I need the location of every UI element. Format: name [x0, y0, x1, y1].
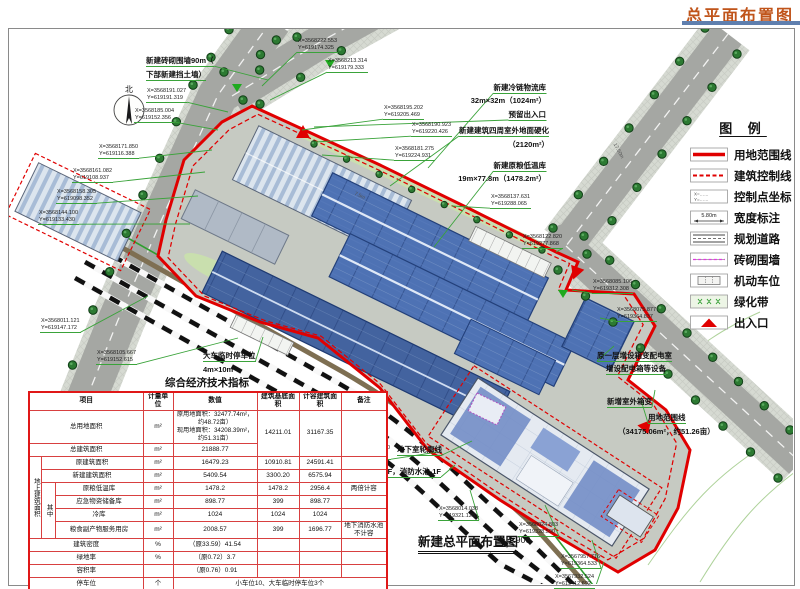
tree-icon	[239, 96, 247, 104]
tree-icon	[225, 28, 233, 34]
tree-icon	[599, 157, 607, 165]
legend: 图 例 用地范围线 建筑控制线 X=……Y=…… 控制点坐标 5.80m 宽度标…	[690, 118, 796, 333]
row-byproduct: 粮食副产物服务用房 m² 2008.57 399 1696.77 地下消防水池不…	[29, 521, 387, 538]
legend-item-control-point: X=……Y=…… 控制点坐标	[690, 186, 796, 207]
width-annotation-icon: 5.80m	[690, 210, 728, 225]
brick-wall-icon	[690, 252, 728, 267]
table-title: 综合经济技术指标	[28, 375, 386, 390]
leader-line	[428, 93, 494, 168]
tree-icon	[746, 448, 754, 456]
tree-icon	[664, 370, 672, 378]
economic-indicators-section: 综合经济技术指标 项目计量单位 数值建筑基底面积 计容建筑面积备注 总用地面积 …	[28, 375, 386, 589]
tree-icon	[272, 36, 280, 44]
tree-icon	[657, 305, 665, 313]
tree-icon	[376, 171, 382, 177]
tree-icon	[296, 73, 304, 81]
tree-icon	[409, 186, 415, 192]
tree-icon	[255, 66, 263, 74]
legend-item-control-line: 建筑控制线	[690, 165, 796, 186]
legend-item-width-annotation: 5.80m 宽度标注	[690, 207, 796, 228]
tree-icon	[719, 422, 727, 430]
tree-icon	[554, 266, 562, 274]
tree-icon	[708, 83, 716, 91]
legend-item-entrance: 出入口	[690, 312, 796, 333]
legend-item-brick-wall: 砖砌围墙	[690, 249, 796, 270]
tree-icon	[441, 201, 447, 207]
row-density: 建筑密度 % （原33.59）41.54	[29, 539, 387, 552]
row-emergency: 应急物资储备库 m² 898.77 399 898.77	[29, 495, 387, 508]
tree-icon	[650, 90, 658, 98]
svg-text:Y=……: Y=……	[694, 197, 709, 202]
entrance-icon	[690, 315, 728, 330]
tree-icon	[256, 100, 264, 108]
legend-item-parking: 机动车位	[690, 270, 796, 291]
row-original-building: 地上建筑面积 原建筑面积 m² 16479.23 10910.81 24591.…	[29, 456, 387, 469]
table-header-row: 项目计量单位 数值建筑基底面积 计容建筑面积备注	[29, 392, 387, 410]
legend-item-planned-road: 规划道路	[690, 228, 796, 249]
econ-table: 项目计量单位 数值建筑基底面积 计容建筑面积备注 总用地面积 m² 原用地面积：…	[28, 391, 388, 589]
land-boundary-icon	[690, 147, 728, 162]
tree-icon	[691, 396, 699, 404]
tree-icon	[539, 247, 545, 253]
tree-icon	[105, 267, 113, 275]
tree-icon	[636, 344, 644, 352]
tree-icon	[701, 28, 709, 32]
tree-icon	[786, 426, 793, 434]
drawing-sheet-page: 北 X=3568222.553Y=619174.325X=3568213.314…	[0, 0, 800, 589]
tree-icon	[122, 229, 130, 237]
legend-item-land-boundary: 用地范围线	[690, 144, 796, 165]
parking-icon	[690, 273, 728, 288]
tree-icon	[337, 46, 345, 54]
drawing-subtitle: 新建总平面布置图	[418, 531, 518, 554]
row-green-rate: 绿地率 % （原0.72）3.7	[29, 552, 387, 565]
tree-icon	[733, 50, 741, 58]
tree-icon	[774, 474, 782, 482]
tree-icon	[506, 232, 512, 238]
row-grain-cold: 其中 原粮低温库 m² 1478.2 1478.2 2956.4 两倍计容	[29, 482, 387, 495]
tree-icon	[89, 306, 97, 314]
north-label: 北	[125, 85, 133, 94]
control-point-icon: X=……Y=……	[690, 189, 728, 204]
scale-label: 1:900	[508, 535, 531, 545]
tree-icon	[549, 224, 557, 232]
tree-icon	[608, 216, 616, 224]
compass-icon: 北	[114, 85, 144, 125]
tree-icon	[606, 256, 614, 264]
title-strip: 总平面布置图	[0, 0, 800, 27]
legend-title: 图 例	[690, 118, 796, 137]
tree-icon	[474, 217, 480, 223]
control-line-icon	[690, 168, 728, 183]
leader-line	[595, 562, 604, 584]
svg-text:X=……: X=……	[694, 192, 709, 197]
tree-icon	[609, 318, 617, 326]
leader-line	[314, 120, 509, 127]
tree-icon	[658, 150, 666, 158]
row-total-land: 总用地面积 m² 原用地面积：32477.74m²， 约48.72亩） 现用地面…	[29, 410, 387, 443]
tree-icon	[709, 353, 717, 361]
tree-icon	[734, 377, 742, 385]
building-left-warehouse	[8, 153, 150, 270]
tree-icon	[256, 50, 264, 58]
leader-line	[390, 136, 459, 186]
tree-icon	[207, 53, 215, 61]
tree-icon	[172, 117, 180, 125]
tree-icon	[574, 190, 582, 198]
leader-line	[315, 136, 411, 142]
tree-icon	[675, 57, 683, 65]
row-parking: 停车位 个 小车位10、大车临时停车位3个	[29, 578, 387, 589]
tree-icon	[68, 361, 76, 369]
tree-icon	[583, 250, 591, 258]
svg-text:5.80m: 5.80m	[701, 213, 717, 219]
tree-icon	[625, 124, 633, 132]
tree-icon	[189, 81, 197, 89]
tree-icon	[631, 280, 639, 288]
row-plot-ratio: 容积率 （原0.76）0.91	[29, 565, 387, 578]
title-underline	[682, 21, 800, 25]
row-new-building: 新建建筑面积 m² 5409.54 3300.20 6575.94	[29, 469, 387, 482]
tree-icon	[293, 33, 301, 41]
tree-icon	[139, 191, 147, 199]
green-belt-icon	[690, 294, 728, 309]
legend-item-green-belt: 绿化带	[690, 291, 796, 312]
tree-icon	[580, 232, 588, 240]
tree-icon	[760, 402, 768, 410]
tree-icon	[633, 183, 641, 191]
row-cold-storage: 冷库 m² 1024 1024 1024	[29, 508, 387, 521]
planned-road-icon	[690, 231, 728, 246]
